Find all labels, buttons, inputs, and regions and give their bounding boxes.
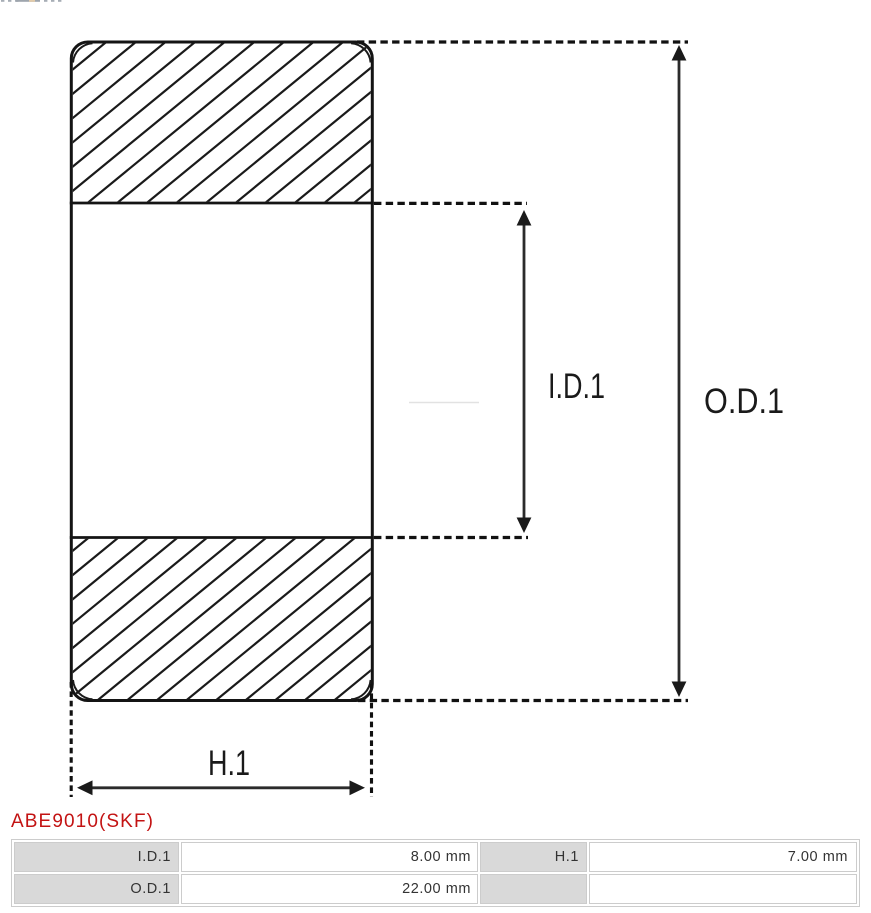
svg-text:O.D.1: O.D.1 <box>704 382 784 421</box>
svg-text:I.D.1: I.D.1 <box>548 367 605 406</box>
svg-text:H.1: H.1 <box>208 744 250 783</box>
